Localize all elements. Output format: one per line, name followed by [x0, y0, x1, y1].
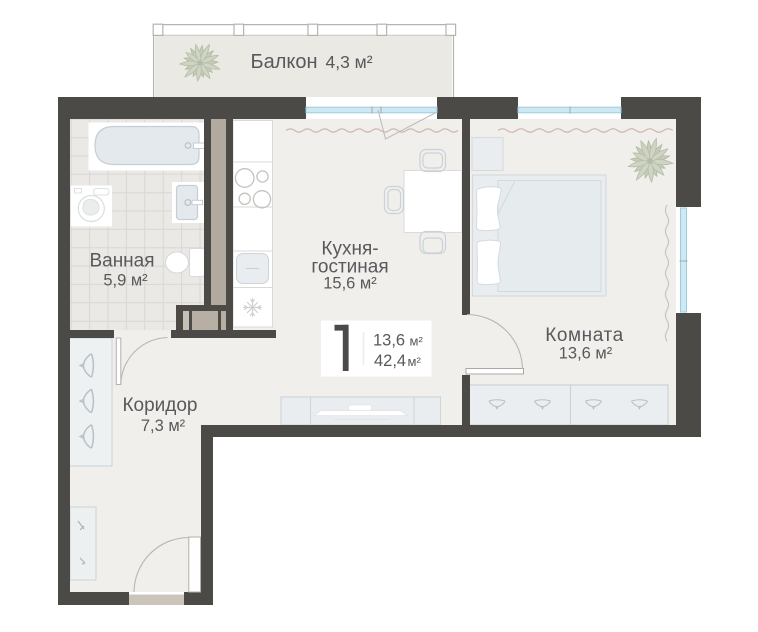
svg-text:42,4: 42,4 — [374, 352, 406, 370]
svg-text:Комната: Комната — [545, 325, 624, 346]
svg-text:5,9 м²: 5,9 м² — [103, 272, 148, 290]
svg-text:7,3 м²: 7,3 м² — [141, 417, 186, 435]
svg-text:13,6 м²: 13,6 м² — [559, 345, 613, 363]
svg-text:Ванная: Ванная — [89, 251, 154, 272]
svg-text:4,3 м²: 4,3 м² — [325, 52, 372, 72]
svg-text:Коридор: Коридор — [122, 395, 197, 416]
svg-text:Балкон: Балкон — [250, 51, 317, 73]
svg-text:15,6 м²: 15,6 м² — [323, 275, 377, 293]
svg-text:13,6: 13,6 — [373, 332, 405, 350]
svg-text:м²: м² — [410, 334, 424, 349]
svg-text:м²: м² — [408, 354, 422, 369]
